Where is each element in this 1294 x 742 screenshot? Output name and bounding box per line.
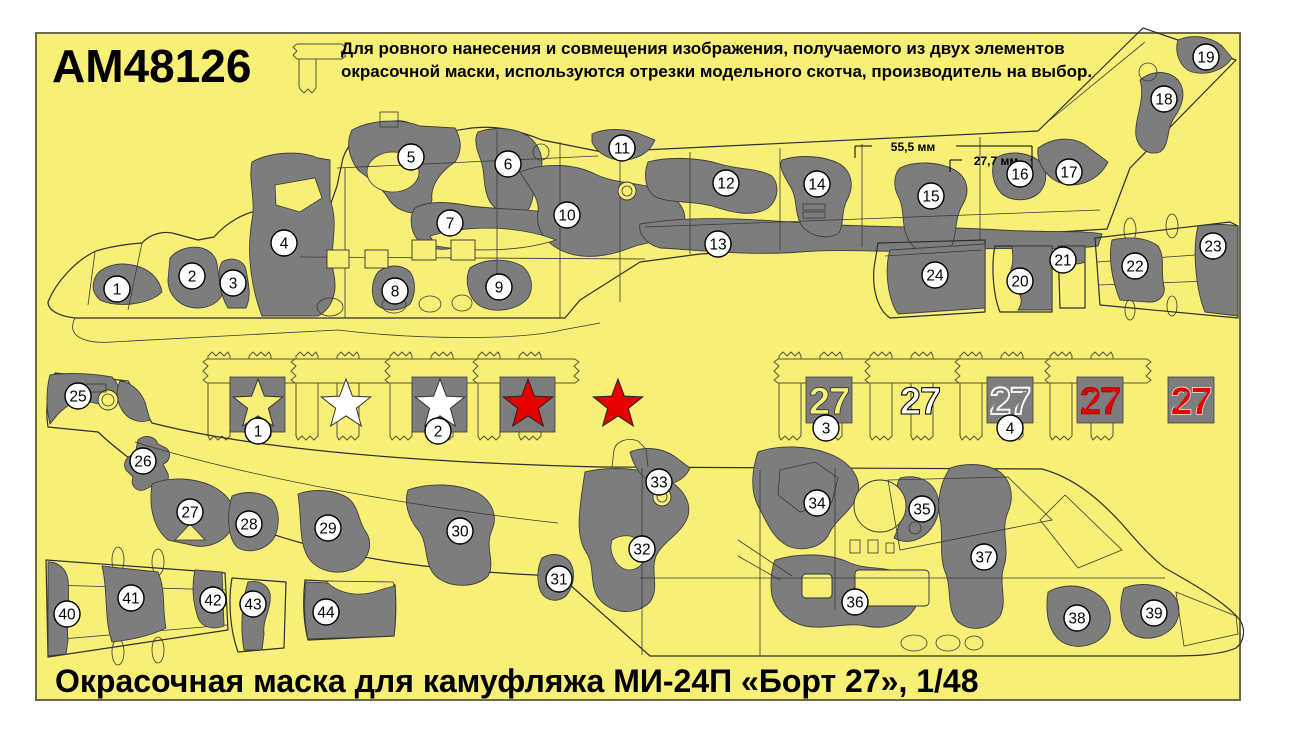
mask-number-label: 13: [709, 236, 726, 253]
mask-number-label: 33: [650, 474, 667, 491]
mask-number-label: 23: [1204, 238, 1221, 255]
mask-number-label: 38: [1068, 610, 1085, 627]
mask-number-label: 17: [1060, 164, 1077, 181]
mask-number-label: 37: [975, 549, 992, 566]
mask-number-label: 20: [1011, 273, 1029, 290]
mask-number-label: 4: [280, 235, 289, 252]
product-code: AM48126: [52, 40, 251, 92]
mask-number-label: 25: [69, 388, 86, 405]
mask-number-label: 21: [1054, 252, 1071, 269]
mask-number-label: 9: [495, 279, 504, 296]
mask-number-label: 28: [240, 516, 257, 533]
mask-number-label: 29: [319, 520, 336, 537]
mask-number-label: 5: [407, 149, 416, 166]
mask-number-label: 16: [1011, 166, 1028, 183]
instruction-line1: Для ровного нанесения и совмещения изобр…: [341, 39, 1065, 58]
mask-number-label: 2: [188, 268, 197, 285]
mask-number-label: 3: [229, 275, 238, 292]
mask-number-label: 34: [808, 495, 826, 512]
mask-number-label: 4: [1006, 420, 1015, 437]
mask-number-label: 31: [550, 571, 567, 588]
number-white: 27: [900, 381, 940, 423]
mask-number-label: 8: [391, 283, 400, 300]
mask-number-label: 3: [822, 420, 831, 437]
mask-number-label: 18: [1155, 91, 1172, 108]
mask-number-label: 36: [846, 594, 863, 611]
dimension-55: 55,5 мм: [891, 140, 936, 154]
mask-number-label: 11: [614, 140, 630, 157]
mask-number-label: 7: [446, 215, 455, 232]
mask-number-label: 44: [317, 604, 335, 621]
number-red-white-outline: 27: [1171, 381, 1211, 423]
mask-number-label: 1: [254, 423, 263, 440]
mask-number-label: 39: [1145, 605, 1162, 622]
mask-number-label: 27: [181, 504, 198, 521]
mask-number-label: 30: [451, 523, 469, 540]
mask-sheet-page: AM48126 Для ровного нанесения и совмещен…: [0, 0, 1294, 742]
mask-sheet-svg: AM48126 Для ровного нанесения и совмещен…: [0, 0, 1294, 742]
number-red-stencil: 27: [1080, 381, 1120, 423]
mask-number-label: 22: [1126, 258, 1143, 275]
mask-number-label: 2: [434, 423, 443, 440]
mask-number-label: 40: [58, 606, 76, 623]
mask-number-label: 15: [922, 188, 939, 205]
mask-number-label: 19: [1197, 49, 1214, 66]
mask-number-label: 24: [926, 267, 944, 284]
instruction-line2: окрасочной маски, используются отрезки м…: [341, 62, 1092, 81]
mask-number-label: 32: [633, 541, 650, 558]
mask-number-label: 14: [808, 176, 826, 193]
mask-number-label: 26: [134, 453, 151, 470]
mask-number-label: 6: [504, 156, 513, 173]
sheet-caption: Окрасочная маска для камуфляжа МИ-24П «Б…: [55, 663, 979, 699]
mask-number-label: 43: [244, 596, 261, 613]
mask-number-label: 42: [204, 592, 221, 609]
mask-number-label: 1: [113, 281, 122, 298]
mask-number-label: 12: [717, 175, 734, 192]
mask-number-label: 35: [913, 501, 930, 518]
mask-number-label: 10: [558, 207, 576, 224]
mask-number-label: 41: [122, 590, 139, 607]
